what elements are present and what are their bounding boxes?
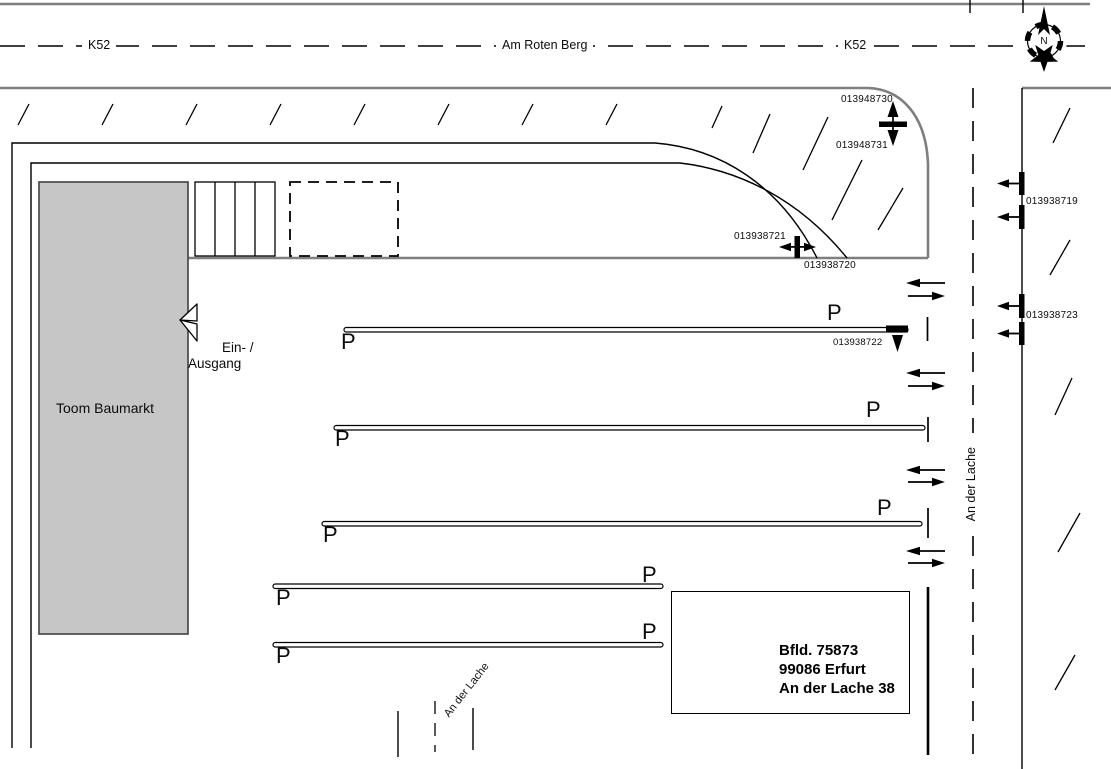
parking-row-2	[334, 426, 925, 431]
route-label-k52-right: K52	[838, 38, 872, 52]
parking-p-row4-right: P	[642, 564, 657, 586]
site-plan-drawing	[0, 0, 1111, 769]
parking-p-row5-right: P	[642, 621, 657, 643]
street-label-an-der-lache-side: An der Lache	[964, 436, 978, 532]
arrow-pair-4	[906, 547, 945, 567]
parking-row-3	[322, 522, 922, 527]
parking-p-row3-left: P	[323, 524, 338, 546]
parking-row-1	[344, 328, 908, 333]
striped-structure	[195, 182, 275, 256]
survey-marker-label-013938721: 013938721	[734, 231, 786, 243]
address-box: Bfld. 75873 99086 Erfurt An der Lache 38	[671, 591, 910, 714]
entrance-label-line1: Ein- /	[222, 340, 254, 356]
parking-row-4	[273, 584, 663, 589]
survey-marker-label-013938722: 013938722	[833, 338, 882, 349]
entrance-label-line2: Ausgang	[188, 356, 241, 372]
marker-013938722-symbol	[886, 326, 908, 353]
survey-marker-label-013938723: 013938723	[1026, 310, 1078, 322]
marker-013938719-symbol	[997, 172, 1025, 229]
arrow-pair-1	[906, 279, 945, 300]
building-label: Toom Baumarkt	[56, 400, 154, 416]
street-label-am-roten-berg: Am Roten Berg	[496, 38, 593, 52]
address-line1: Bfld. 75873	[779, 641, 895, 660]
survey-marker-label-013948730: 013948730	[841, 94, 893, 106]
survey-marker-label-013948731: 013948731	[836, 140, 888, 152]
site-plan: K52 Am Roten Berg K52 013948730 01394873…	[0, 0, 1111, 769]
marker-013938722-down-arrow	[892, 335, 903, 352]
parking-p-row1-left: P	[341, 331, 356, 353]
route-label-k52-left: K52	[82, 38, 116, 52]
compass-north-label: N	[1037, 36, 1051, 48]
survey-marker-label-013938720: 013938720	[804, 260, 856, 272]
parking-row-5	[273, 643, 663, 648]
address-line3: An der Lache 38	[779, 679, 895, 698]
arrow-pair-3	[906, 466, 945, 486]
marker-013938722-bar	[886, 326, 908, 333]
arrow-pair-2	[906, 369, 945, 390]
parking-p-row2-right: P	[866, 399, 881, 421]
dashed-area-outline	[290, 182, 398, 256]
survey-marker-label-013938719: 013938719	[1026, 196, 1078, 208]
address-line2: 99086 Erfurt	[779, 660, 895, 679]
parking-p-row4-left: P	[276, 587, 291, 609]
parking-p-row3-right: P	[877, 497, 892, 519]
parking-row-end-ticks	[928, 317, 929, 538]
marker-013938723-symbol	[997, 294, 1025, 345]
parking-p-row2-left: P	[335, 428, 350, 450]
parking-p-row5-left: P	[276, 645, 291, 667]
parking-p-row1-right: P	[827, 302, 842, 324]
